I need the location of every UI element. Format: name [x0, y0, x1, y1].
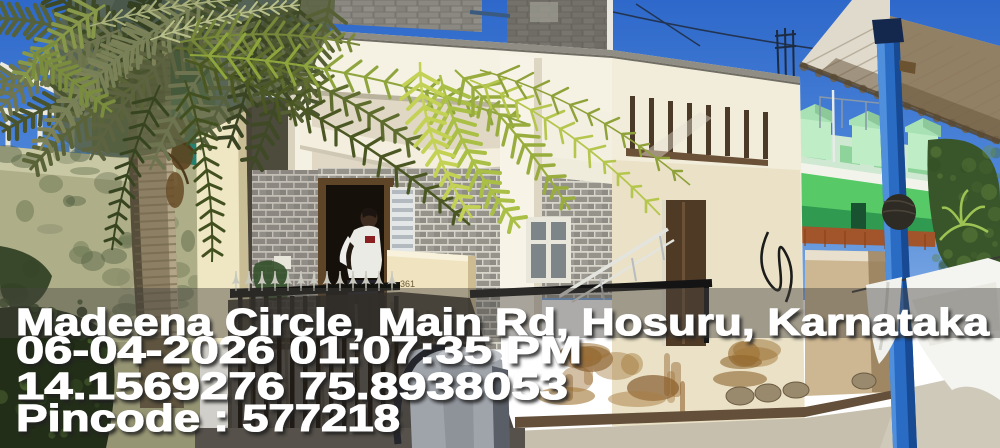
svg-text:361: 361: [400, 279, 415, 289]
svg-text:Pincode : 577218: Pincode : 577218: [16, 398, 400, 440]
